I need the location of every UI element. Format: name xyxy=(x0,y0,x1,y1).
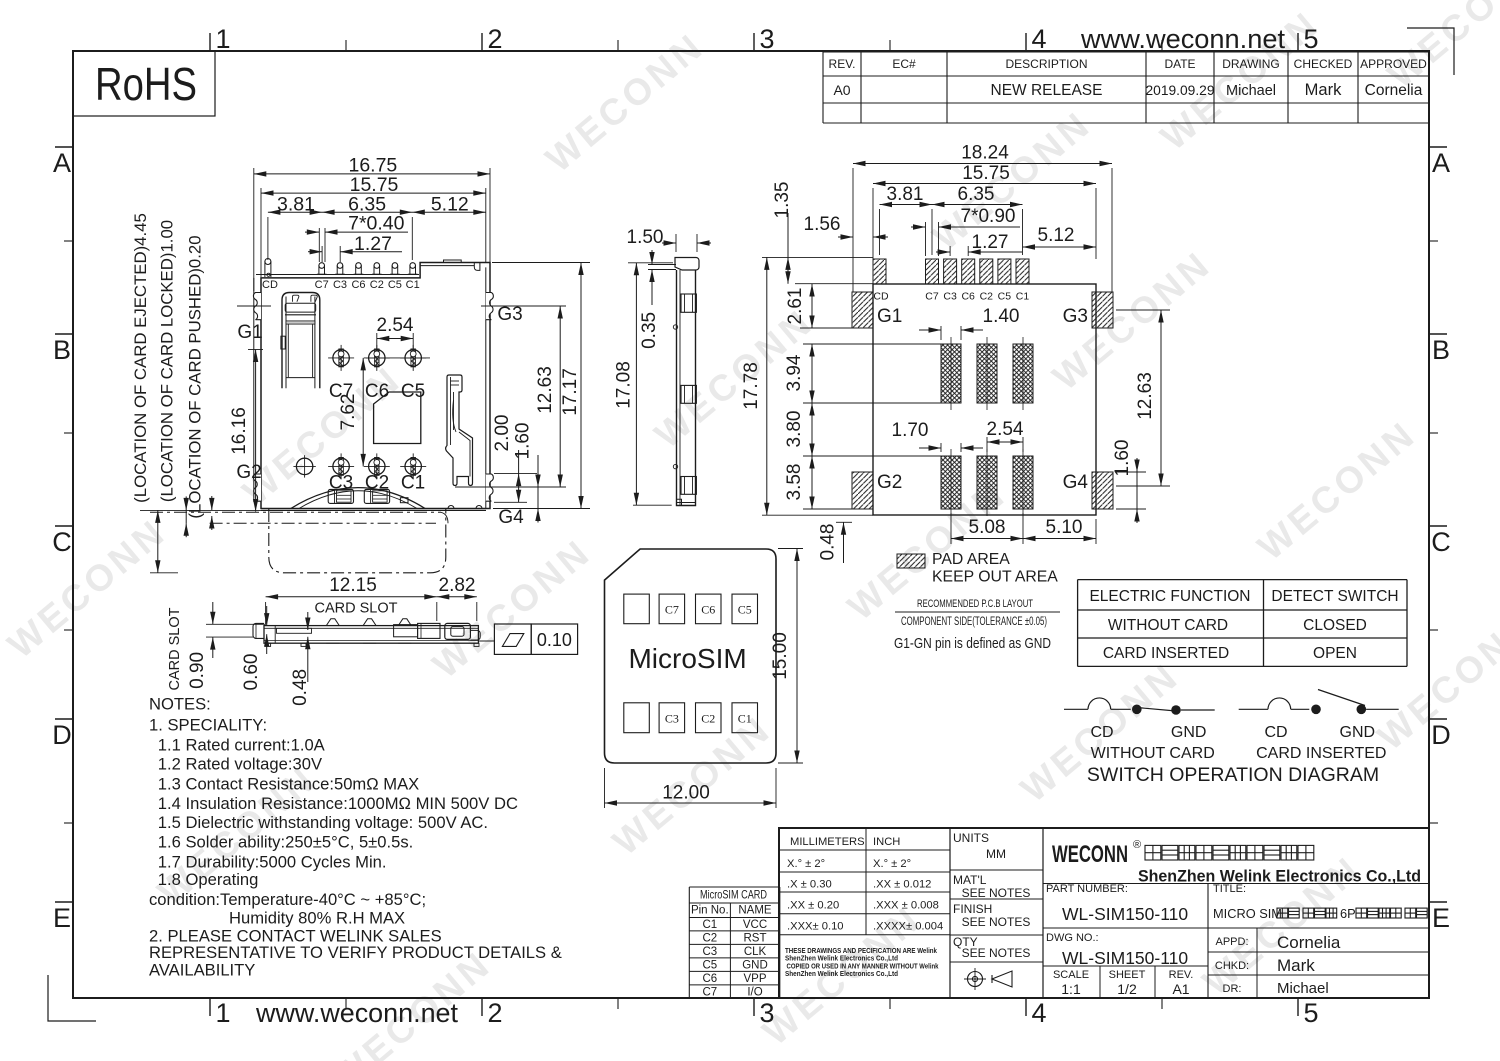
svg-text:C3: C3 xyxy=(665,712,679,726)
svg-text:1.3 Contact Resistance:50mΩ MA: 1.3 Contact Resistance:50mΩ MAX xyxy=(158,774,419,793)
svg-text:0.48: 0.48 xyxy=(290,669,311,706)
svg-text:C3: C3 xyxy=(333,279,347,291)
svg-text:17.78: 17.78 xyxy=(741,362,762,410)
svg-text:WITHOUT CARD: WITHOUT CARD xyxy=(1108,617,1228,634)
svg-text:C: C xyxy=(52,527,72,557)
svg-text:REPRESENTATIVE TO VERIFY PRODU: REPRESENTATIVE TO VERIFY PRODUCT DETAILS… xyxy=(149,943,562,962)
svg-text:C1: C1 xyxy=(1016,291,1030,303)
svg-text:G3: G3 xyxy=(1063,306,1088,327)
svg-text:0.60: 0.60 xyxy=(241,654,262,691)
svg-text:ELECTRIC FUNCTION: ELECTRIC FUNCTION xyxy=(1089,588,1250,605)
svg-text:1.5 Dielectric withstanding vo: 1.5 Dielectric withstanding voltage: 500… xyxy=(158,813,488,832)
svg-text:B: B xyxy=(1432,335,1450,365)
svg-text:WL-SIM150-110: WL-SIM150-110 xyxy=(1062,904,1188,924)
svg-text:(LOCATION OF CARD EJECTED)4.45: (LOCATION OF CARD EJECTED)4.45 xyxy=(131,213,150,503)
svg-text:3.81: 3.81 xyxy=(887,184,924,205)
svg-text:C6: C6 xyxy=(961,291,975,303)
svg-text:SHEET: SHEET xyxy=(1109,969,1146,981)
svg-text:G4: G4 xyxy=(498,507,524,528)
svg-text:A0: A0 xyxy=(833,82,850,98)
svg-text:E: E xyxy=(1432,903,1450,933)
svg-text:ShenZhen Welink Electronics Co: ShenZhen Welink Electronics Co.,Ltd xyxy=(1138,867,1421,886)
svg-text:4: 4 xyxy=(1031,24,1046,54)
svg-text:SWITCH OPERATION DIAGRAM: SWITCH OPERATION DIAGRAM xyxy=(1087,764,1379,786)
svg-text:1.40: 1.40 xyxy=(983,306,1020,327)
svg-text:17.08: 17.08 xyxy=(614,361,635,409)
svg-text:5.08: 5.08 xyxy=(969,517,1006,538)
svg-text:VCC: VCC xyxy=(743,919,767,931)
svg-text:1.50: 1.50 xyxy=(627,227,664,248)
svg-text:1.6 Solder ability:250±5°C, 5: 1.6 Solder ability:250±5°C, 5±0.5s. xyxy=(158,833,413,852)
svg-text:CARD SLOT: CARD SLOT xyxy=(315,601,398,617)
svg-text:1.60: 1.60 xyxy=(513,423,534,460)
svg-text:A1: A1 xyxy=(1172,981,1189,997)
svg-text:1.2 Rated voltage:30V: 1.2 Rated voltage:30V xyxy=(158,754,322,773)
svg-text:1.1 Rated current:1.0A: 1.1 Rated current:1.0A xyxy=(158,735,326,754)
svg-text:A: A xyxy=(53,148,71,178)
svg-text:C3: C3 xyxy=(943,291,957,303)
svg-text:G2: G2 xyxy=(877,472,902,493)
svg-text:G1: G1 xyxy=(237,322,262,343)
svg-text:CD: CD xyxy=(873,291,889,303)
svg-text:®: ® xyxy=(1133,839,1141,851)
svg-text:2.61: 2.61 xyxy=(785,288,806,325)
svg-text:C2: C2 xyxy=(370,279,384,291)
svg-text:G2: G2 xyxy=(236,462,261,483)
svg-text:C1: C1 xyxy=(738,712,752,726)
svg-text:C6: C6 xyxy=(365,381,389,402)
svg-text:X.° ± 2°: X.° ± 2° xyxy=(787,858,825,870)
svg-text:4: 4 xyxy=(1031,998,1046,1028)
svg-text:NEW RELEASE: NEW RELEASE xyxy=(991,82,1103,99)
svg-text:REV.: REV. xyxy=(1169,969,1194,981)
svg-text:C: C xyxy=(1431,527,1451,557)
svg-text:12.00: 12.00 xyxy=(662,783,710,804)
svg-text:7.62: 7.62 xyxy=(338,394,359,431)
svg-text:KEEP OUT AREA: KEEP OUT AREA xyxy=(932,569,1058,586)
svg-text:APPD:: APPD: xyxy=(1215,936,1248,948)
svg-text:3.94: 3.94 xyxy=(784,354,805,391)
svg-text:DATE: DATE xyxy=(1164,57,1195,71)
svg-text:NAME: NAME xyxy=(738,905,772,917)
svg-text:3.80: 3.80 xyxy=(784,411,805,448)
svg-text:Cornelia: Cornelia xyxy=(1365,82,1423,99)
svg-text:PART NUMBER:: PART NUMBER: xyxy=(1046,883,1128,895)
svg-text:0.35: 0.35 xyxy=(639,312,660,349)
svg-text:C1: C1 xyxy=(406,279,420,291)
svg-text:Michael: Michael xyxy=(1226,83,1276,99)
svg-text:C6: C6 xyxy=(351,279,365,291)
svg-text:2: 2 xyxy=(487,998,502,1028)
svg-text:G1-GN pin is defined as GND: G1-GN pin is defined as GND xyxy=(894,636,1051,652)
svg-text:MicroSIM CARD: MicroSIM CARD xyxy=(700,888,767,902)
svg-text:FINISH: FINISH xyxy=(953,902,992,916)
svg-text:16.16: 16.16 xyxy=(229,407,250,455)
svg-text:.XXX± 0.10: .XXX± 0.10 xyxy=(787,921,844,933)
svg-text:C6: C6 xyxy=(701,602,715,616)
svg-text:7*0.40: 7*0.40 xyxy=(348,213,405,235)
svg-text:2.00: 2.00 xyxy=(492,415,513,452)
svg-text:2.82: 2.82 xyxy=(439,575,476,596)
svg-text:SCALE: SCALE xyxy=(1053,969,1089,981)
svg-text:18.24: 18.24 xyxy=(961,143,1009,164)
svg-text:CD: CD xyxy=(262,279,278,291)
svg-text:6P: 6P xyxy=(1340,906,1356,921)
svg-text:1:1: 1:1 xyxy=(1061,981,1081,997)
svg-text:C1: C1 xyxy=(702,919,717,931)
svg-text:G4: G4 xyxy=(1063,472,1089,493)
svg-text:.XXXX± 0.004: .XXXX± 0.004 xyxy=(873,921,943,933)
svg-text:C3: C3 xyxy=(702,946,717,958)
svg-text:I/O: I/O xyxy=(747,986,762,998)
svg-text:C2: C2 xyxy=(702,932,717,944)
svg-text:2.54: 2.54 xyxy=(377,315,414,336)
svg-text:1.8 Operating: 1.8 Operating xyxy=(158,870,259,889)
svg-text:C6: C6 xyxy=(702,973,717,985)
svg-text:CARD INSERTED: CARD INSERTED xyxy=(1256,745,1386,762)
svg-text:7*0.90: 7*0.90 xyxy=(961,206,1016,227)
svg-text:.X ± 0.30: .X ± 0.30 xyxy=(787,879,832,891)
svg-text:DRAWING: DRAWING xyxy=(1222,57,1280,71)
svg-text:GND: GND xyxy=(1340,724,1376,741)
svg-text:CLOSED: CLOSED xyxy=(1303,617,1367,634)
svg-text:C1: C1 xyxy=(401,473,425,494)
svg-text:CARD INSERTED: CARD INSERTED xyxy=(1103,645,1229,662)
svg-text:DETECT SWITCH: DETECT SWITCH xyxy=(1271,588,1398,605)
svg-text:X.° ± 2°: X.° ± 2° xyxy=(873,858,911,870)
svg-text:C2: C2 xyxy=(701,712,715,726)
svg-text:C7: C7 xyxy=(925,291,939,303)
svg-text:CD: CD xyxy=(1264,724,1287,741)
svg-text:1.27: 1.27 xyxy=(354,233,392,255)
svg-text:0.90: 0.90 xyxy=(187,652,208,689)
svg-text:INCH: INCH xyxy=(873,836,900,848)
svg-text:5.10: 5.10 xyxy=(1046,517,1083,538)
svg-text:APPROVED: APPROVED xyxy=(1360,57,1427,71)
svg-text:1.4 Insulation Resistance:1000: 1.4 Insulation Resistance:1000MΩ MIN 500… xyxy=(158,794,518,813)
svg-text:.XXX ± 0.008: .XXX ± 0.008 xyxy=(873,900,939,912)
svg-text:3.58: 3.58 xyxy=(784,464,805,501)
svg-text:2: 2 xyxy=(487,24,502,54)
svg-text:VPP: VPP xyxy=(743,973,766,985)
svg-text:MicroSIM: MicroSIM xyxy=(628,643,746,674)
svg-text:MAT'L: MAT'L xyxy=(953,873,987,887)
svg-text:3: 3 xyxy=(759,998,774,1028)
svg-text:Pin No.: Pin No. xyxy=(691,905,729,917)
svg-text:COMPONENT SIDE(TOLERANCE ±0.05: COMPONENT SIDE(TOLERANCE ±0.05) xyxy=(901,616,1047,628)
svg-text:C5: C5 xyxy=(388,279,402,291)
svg-text:Humidity 80% R.H MAX: Humidity 80% R.H MAX xyxy=(229,909,405,928)
svg-text:1.70: 1.70 xyxy=(892,420,929,441)
svg-text:A: A xyxy=(1432,148,1450,178)
svg-text:1: 1 xyxy=(215,24,230,54)
svg-text:RECOMMENDED P.C.B LAYOUT: RECOMMENDED P.C.B LAYOUT xyxy=(917,598,1033,610)
svg-text:CHECKED: CHECKED xyxy=(1294,57,1353,71)
svg-text:1.7 Durability:5000 Cycles Min: 1.7 Durability:5000 Cycles Min. xyxy=(158,853,387,872)
svg-text:(LOCATION OF CARD PUSHED)0.20: (LOCATION OF CARD PUSHED)0.20 xyxy=(185,235,204,518)
svg-text:C5: C5 xyxy=(998,291,1012,303)
svg-text:Michael: Michael xyxy=(1277,980,1329,997)
svg-text:G1: G1 xyxy=(877,306,902,327)
svg-text:RST: RST xyxy=(744,932,767,944)
svg-text:SEE NOTES: SEE NOTES xyxy=(962,946,1031,960)
svg-text:C7: C7 xyxy=(665,602,679,616)
svg-text:C2: C2 xyxy=(980,291,994,303)
svg-text:3: 3 xyxy=(759,24,774,54)
svg-text:D: D xyxy=(52,720,72,750)
svg-text:6.35: 6.35 xyxy=(958,184,995,205)
svg-text:5: 5 xyxy=(1303,998,1318,1028)
svg-text:1.56: 1.56 xyxy=(804,214,841,235)
svg-text:.XX ± 0.012: .XX ± 0.012 xyxy=(873,879,931,891)
svg-text:TITLE:: TITLE: xyxy=(1213,883,1246,895)
svg-text:CD: CD xyxy=(1090,724,1113,741)
svg-text:1.35: 1.35 xyxy=(772,182,793,219)
svg-text:AVAILABILITY: AVAILABILITY xyxy=(149,961,255,980)
svg-text:Mark: Mark xyxy=(1305,81,1342,99)
svg-text:REV.: REV. xyxy=(829,57,856,71)
svg-text:OPEN: OPEN xyxy=(1313,645,1357,662)
svg-text:5.12: 5.12 xyxy=(431,194,469,216)
svg-text:C7: C7 xyxy=(315,279,329,291)
svg-text:3.81: 3.81 xyxy=(277,194,315,216)
svg-text:DWG NO.:: DWG NO.: xyxy=(1046,932,1099,944)
svg-text:12.15: 12.15 xyxy=(329,575,377,596)
svg-text:CARD SLOT: CARD SLOT xyxy=(167,607,183,690)
svg-text:15.75: 15.75 xyxy=(350,174,399,196)
svg-text:1.60: 1.60 xyxy=(1112,440,1133,477)
svg-text:0.10: 0.10 xyxy=(537,630,572,650)
svg-text:15.00: 15.00 xyxy=(770,632,791,680)
svg-text:PAD AREA: PAD AREA xyxy=(932,551,1010,568)
svg-text:MICRO SIM: MICRO SIM xyxy=(1213,906,1282,921)
svg-text:CLK: CLK xyxy=(744,946,767,958)
svg-text:CHKD:: CHKD: xyxy=(1215,960,1249,972)
svg-text:D: D xyxy=(1431,720,1451,750)
svg-text:1. SPECIALITY:: 1. SPECIALITY: xyxy=(149,716,267,735)
svg-text:C7: C7 xyxy=(702,986,717,998)
svg-text:2.54: 2.54 xyxy=(987,419,1024,440)
svg-text:WECONN: WECONN xyxy=(1052,841,1128,868)
svg-text:5: 5 xyxy=(1303,24,1318,54)
svg-text:WL-SIM150-110: WL-SIM150-110 xyxy=(1062,948,1188,968)
svg-text:G3: G3 xyxy=(497,304,522,325)
svg-text:Cornelia: Cornelia xyxy=(1277,933,1341,952)
svg-text:C5: C5 xyxy=(702,959,717,971)
svg-text:1: 1 xyxy=(215,998,230,1028)
svg-text:12.63: 12.63 xyxy=(1135,372,1156,420)
svg-text:SEE NOTES: SEE NOTES xyxy=(962,915,1031,929)
svg-text:E: E xyxy=(53,903,71,933)
svg-text:DESCRIPTION: DESCRIPTION xyxy=(1005,57,1087,71)
svg-text:Mark: Mark xyxy=(1277,956,1315,975)
svg-text:15.75: 15.75 xyxy=(962,163,1010,184)
svg-text:NOTES:: NOTES: xyxy=(149,695,211,714)
svg-text:GND: GND xyxy=(742,959,768,971)
svg-text:C5: C5 xyxy=(738,602,752,616)
svg-text:1/2: 1/2 xyxy=(1117,981,1137,997)
svg-text:2019.09.29: 2019.09.29 xyxy=(1145,83,1214,98)
svg-text:ShenZhen Welink Electronics Co: ShenZhen Welink Electronics Co.,Ltd xyxy=(785,969,898,978)
svg-text:17.17: 17.17 xyxy=(560,368,581,416)
svg-text:RoHS: RoHS xyxy=(95,58,197,110)
svg-text:EC#: EC# xyxy=(892,57,916,71)
svg-text:SEE NOTES: SEE NOTES xyxy=(962,886,1031,900)
svg-text:DR:: DR: xyxy=(1223,983,1242,995)
svg-text:www.weconn.net: www.weconn.net xyxy=(1080,24,1286,54)
svg-text:0.48: 0.48 xyxy=(818,524,839,561)
svg-text:GND: GND xyxy=(1171,724,1207,741)
svg-text:WITHOUT CARD: WITHOUT CARD xyxy=(1091,745,1215,762)
svg-text:UNITS: UNITS xyxy=(953,831,989,845)
svg-text:(LOCATION OF CARD LOCKED)1.00: (LOCATION OF CARD LOCKED)1.00 xyxy=(158,220,177,502)
svg-text:MILLIMETERS: MILLIMETERS xyxy=(790,836,865,848)
svg-text:5.12: 5.12 xyxy=(1038,225,1075,246)
svg-text:MM: MM xyxy=(986,847,1006,861)
svg-text:.XX ± 0.20: .XX ± 0.20 xyxy=(787,900,839,912)
svg-text:1.27: 1.27 xyxy=(972,232,1009,253)
svg-text:B: B xyxy=(53,335,71,365)
svg-text:12.63: 12.63 xyxy=(535,366,556,414)
svg-text:www.weconn.net: www.weconn.net xyxy=(255,998,458,1028)
svg-text:condition:Temperature-40°C ~ +: condition:Temperature-40°C ~ +85°C; xyxy=(149,890,426,909)
